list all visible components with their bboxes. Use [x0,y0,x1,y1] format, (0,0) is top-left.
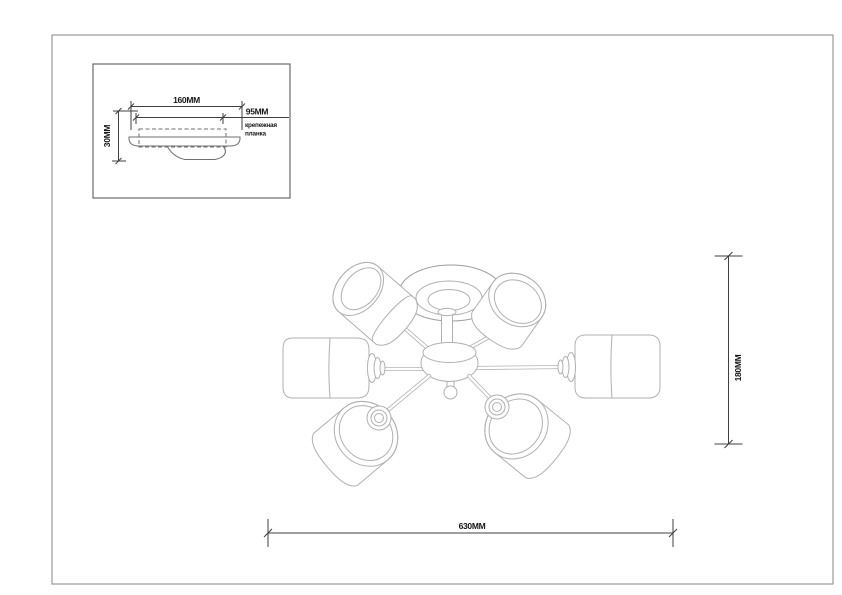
dim-width-630: 630MM [264,519,677,547]
drawing-sheet: 160MM 95MM крепежная планка 30MM [0,0,842,595]
inset-canopy-profile [129,137,240,160]
finial-ball [444,386,457,399]
socket-right [558,353,576,382]
inset-panel: 160MM 95MM крепежная планка 30MM [93,64,290,198]
dim-width-label: 630MM [459,521,486,531]
socket-bottom-left [367,406,391,430]
inset-dim-height: 30MM [102,108,138,164]
dim-height-180: 180MM [715,252,744,448]
chandelier-drawing [283,253,660,493]
inset-dim-width: 160MM [128,95,245,130]
shade-left [283,338,385,398]
socket-left [368,354,386,383]
shade-right [558,335,660,398]
inset-dim-plate: 95MM крепежная планка [133,107,289,138]
inset-plate-dim-label: 95MM [246,107,269,117]
inset-plate-name-line1: крепежная [245,122,277,129]
dim-height-label: 180MM [733,354,743,381]
inset-plate-name-line2: планка [245,131,267,138]
arm-right [475,367,561,368]
technical-drawing: 160MM 95MM крепежная планка 30MM [0,0,842,595]
shade-top-left [323,253,425,353]
socket-bottom-right [485,395,509,419]
inset-height-label: 30MM [102,125,112,148]
inset-mounting-plate [139,129,226,147]
central-hub [421,343,478,400]
inset-width-label: 160MM [173,95,200,105]
